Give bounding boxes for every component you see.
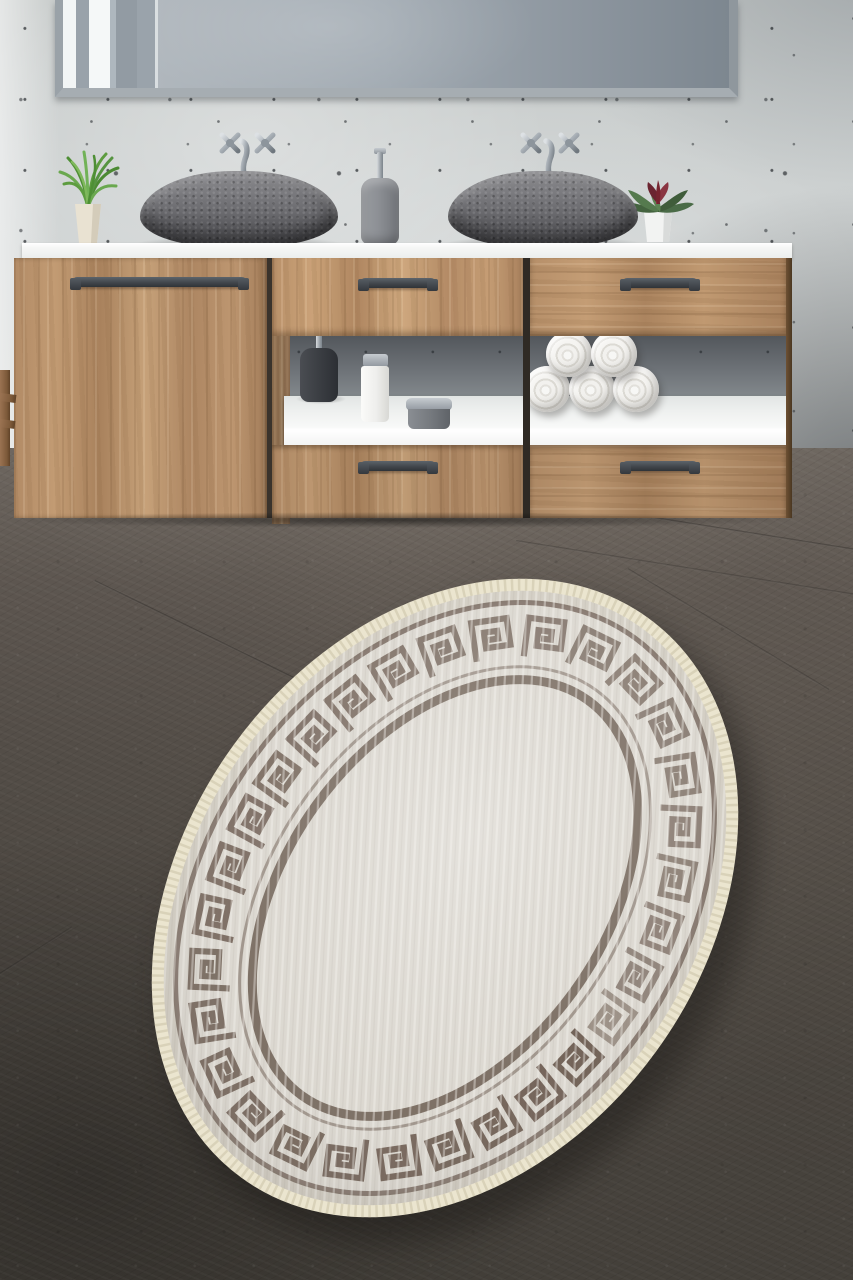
drawer-upper-middle (272, 258, 523, 336)
towel-roll (546, 331, 592, 377)
drawer-handle (360, 461, 436, 471)
drawer-lower-right (530, 445, 786, 518)
drawer-handle (360, 278, 436, 288)
wooden-chair (0, 370, 10, 466)
cabinet-door-left (14, 258, 267, 518)
cabinet-side-edge (786, 258, 792, 518)
soap-dispenser (361, 178, 399, 245)
drawer-upper-right (530, 258, 786, 336)
bathroom-scene (0, 0, 853, 1280)
bromeliad-center (647, 180, 668, 204)
door-handle (72, 277, 247, 287)
mirror-concrete-reflection (155, 0, 729, 88)
stone-sink-right (448, 171, 638, 247)
faucet-spout (241, 141, 247, 174)
soap-pump-stem (377, 152, 383, 180)
wooden-chair-rung (0, 419, 15, 429)
dark-cosmetic-bottle (300, 348, 338, 402)
vanity-cabinet (14, 258, 792, 518)
cosmetic-jar (408, 409, 450, 429)
cabinet-gap (523, 258, 530, 518)
plant-pot-shade (663, 212, 672, 242)
faucet-spout (546, 141, 552, 174)
drawer-handle (622, 278, 698, 288)
wooden-chair-rung (0, 393, 16, 403)
countertop (22, 243, 792, 258)
stone-sink-left (140, 171, 338, 247)
grass-leaves (60, 152, 118, 208)
mirror-window-reflection (63, 0, 155, 88)
white-cosmetic-tube (361, 366, 389, 422)
drawer-handle (622, 461, 698, 471)
wall-mirror (55, 0, 738, 97)
towel-roll (591, 331, 637, 377)
grass-plant (48, 146, 130, 246)
